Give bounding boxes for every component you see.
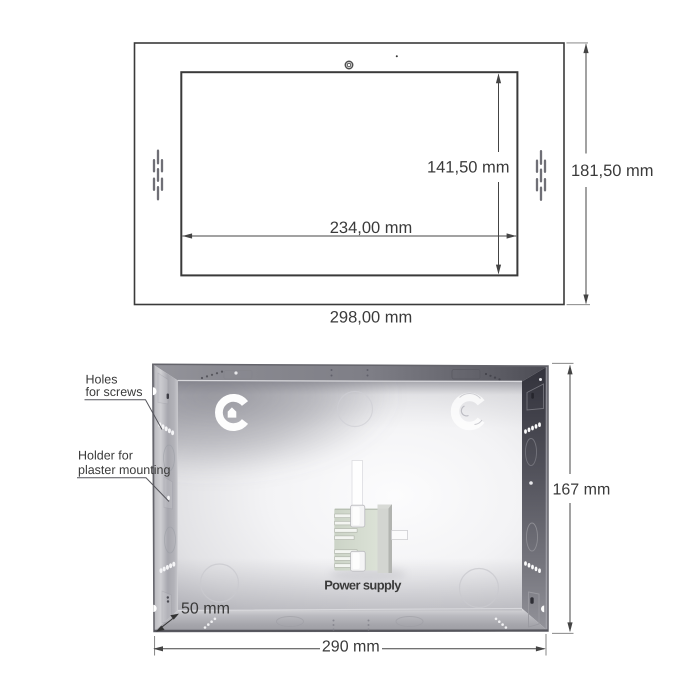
svg-text:167 mm: 167 mm <box>553 482 611 499</box>
svg-text:298,00 mm: 298,00 mm <box>330 308 413 326</box>
svg-text:141,50 mm: 141,50 mm <box>427 159 510 177</box>
svg-text:290 mm: 290 mm <box>322 639 380 656</box>
svg-text:plaster mounting: plaster mounting <box>78 463 170 477</box>
svg-text:for screws: for screws <box>86 385 143 399</box>
svg-text:234,00 mm: 234,00 mm <box>330 219 413 237</box>
svg-text:Holder for: Holder for <box>78 449 133 463</box>
svg-text:50 mm: 50 mm <box>181 601 230 618</box>
svg-text:Power supply: Power supply <box>324 577 402 592</box>
svg-text:181,50 mm: 181,50 mm <box>571 162 654 180</box>
